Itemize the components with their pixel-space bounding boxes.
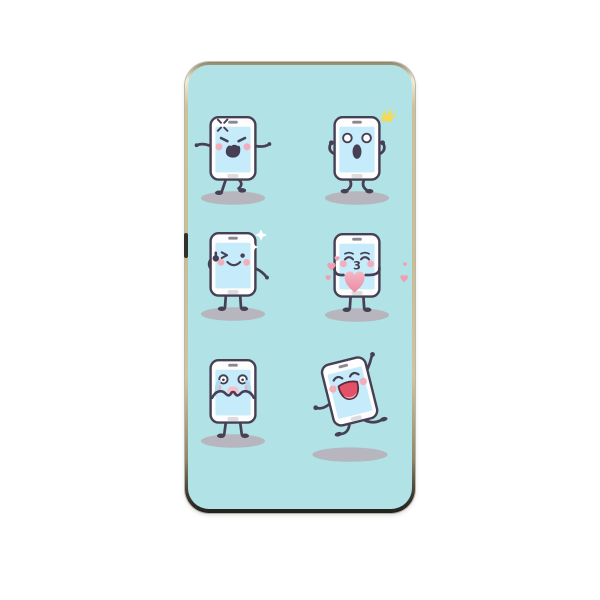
ground-shadow [312,447,387,461]
home-button [351,174,362,178]
sticker-angry-phone [189,106,277,210]
speaker-slot [228,237,238,240]
speaker-slot [228,121,238,124]
speaker-slot [352,121,362,124]
product-photo: 3 [0,0,600,600]
startle-crown-icon [381,108,397,122]
home-button [351,291,362,295]
phone-case: 3 [185,62,415,513]
case-side-button [184,233,189,258]
screaming-mouth [226,145,241,158]
sticker-winking-phone [189,222,277,326]
ground-shadow [201,307,265,321]
sticker-kissing-phone: 3 [313,223,401,327]
tilted-figure [304,351,392,440]
home-button [227,417,238,421]
ground-shadow [325,191,389,205]
ground-shadow [201,191,265,205]
ground-shadow [325,308,389,322]
home-button [227,174,238,178]
ground-shadow [201,434,265,448]
gasp-mouth [353,144,362,158]
sticker-dancing-phone [306,349,394,461]
kiss-mouth-label: 3 [353,259,361,272]
home-button [227,290,238,294]
sticker-surprised-phone [313,106,401,210]
case-print-design: 3 [188,65,412,509]
sticker-crying-phone [189,349,277,453]
speaker-slot [228,364,238,367]
speaker-slot [352,238,362,241]
